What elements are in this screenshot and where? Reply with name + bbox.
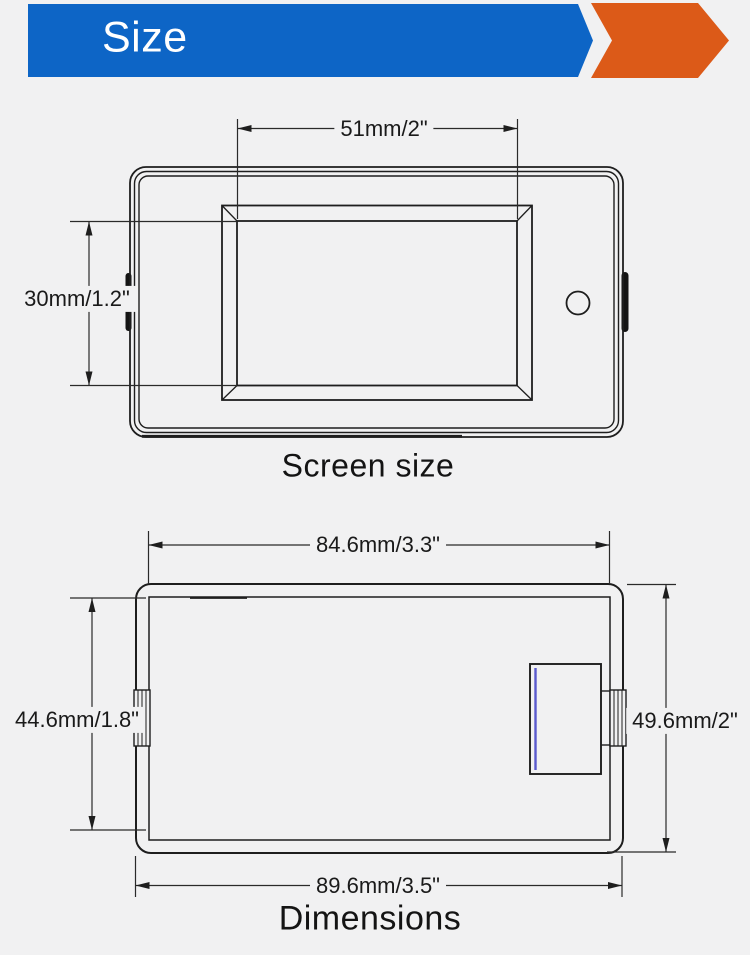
banner-orange-chevron-icon	[591, 3, 729, 78]
device-front-drawing	[126, 167, 629, 437]
front-body-mid	[135, 172, 619, 433]
screen-inner-rect	[237, 221, 517, 386]
dim-screen-width-label: 51mm/2"	[334, 116, 433, 142]
dimensions-caption: Dimensions	[279, 900, 462, 939]
back-body-outer	[136, 584, 623, 853]
page-title: Size	[102, 14, 188, 63]
screen-outer-rect	[222, 206, 532, 401]
front-body-outer	[130, 167, 623, 437]
dim-back-right-label: 49.6mm/2"	[626, 708, 744, 734]
back-body-inner	[149, 597, 610, 840]
arrow-up-icon	[86, 222, 93, 236]
dim-back-left-label: 44.6mm/1.8"	[9, 707, 145, 733]
size-infographic-page: Size 51mm/2" 30mm/1.2" Screen size 84.6m…	[0, 0, 750, 955]
battery-compartment	[530, 664, 610, 774]
dim-screen-height-label: 30mm/1.2"	[18, 286, 136, 312]
arrow-right-icon	[504, 125, 518, 132]
battery-box	[530, 664, 601, 774]
front-button-circle	[567, 292, 590, 315]
back-right-clip	[610, 690, 626, 746]
arrow-down-icon	[86, 372, 93, 386]
screen-bezel	[222, 206, 532, 401]
arrow-left-icon	[238, 125, 252, 132]
device-back-drawing	[134, 584, 626, 853]
screen-size-caption: Screen size	[282, 448, 455, 485]
dim-back-top-label: 84.6mm/3.3"	[310, 532, 446, 558]
front-body-inner	[139, 176, 614, 428]
dim-back-bottom-label: 89.6mm/3.5"	[310, 873, 446, 899]
